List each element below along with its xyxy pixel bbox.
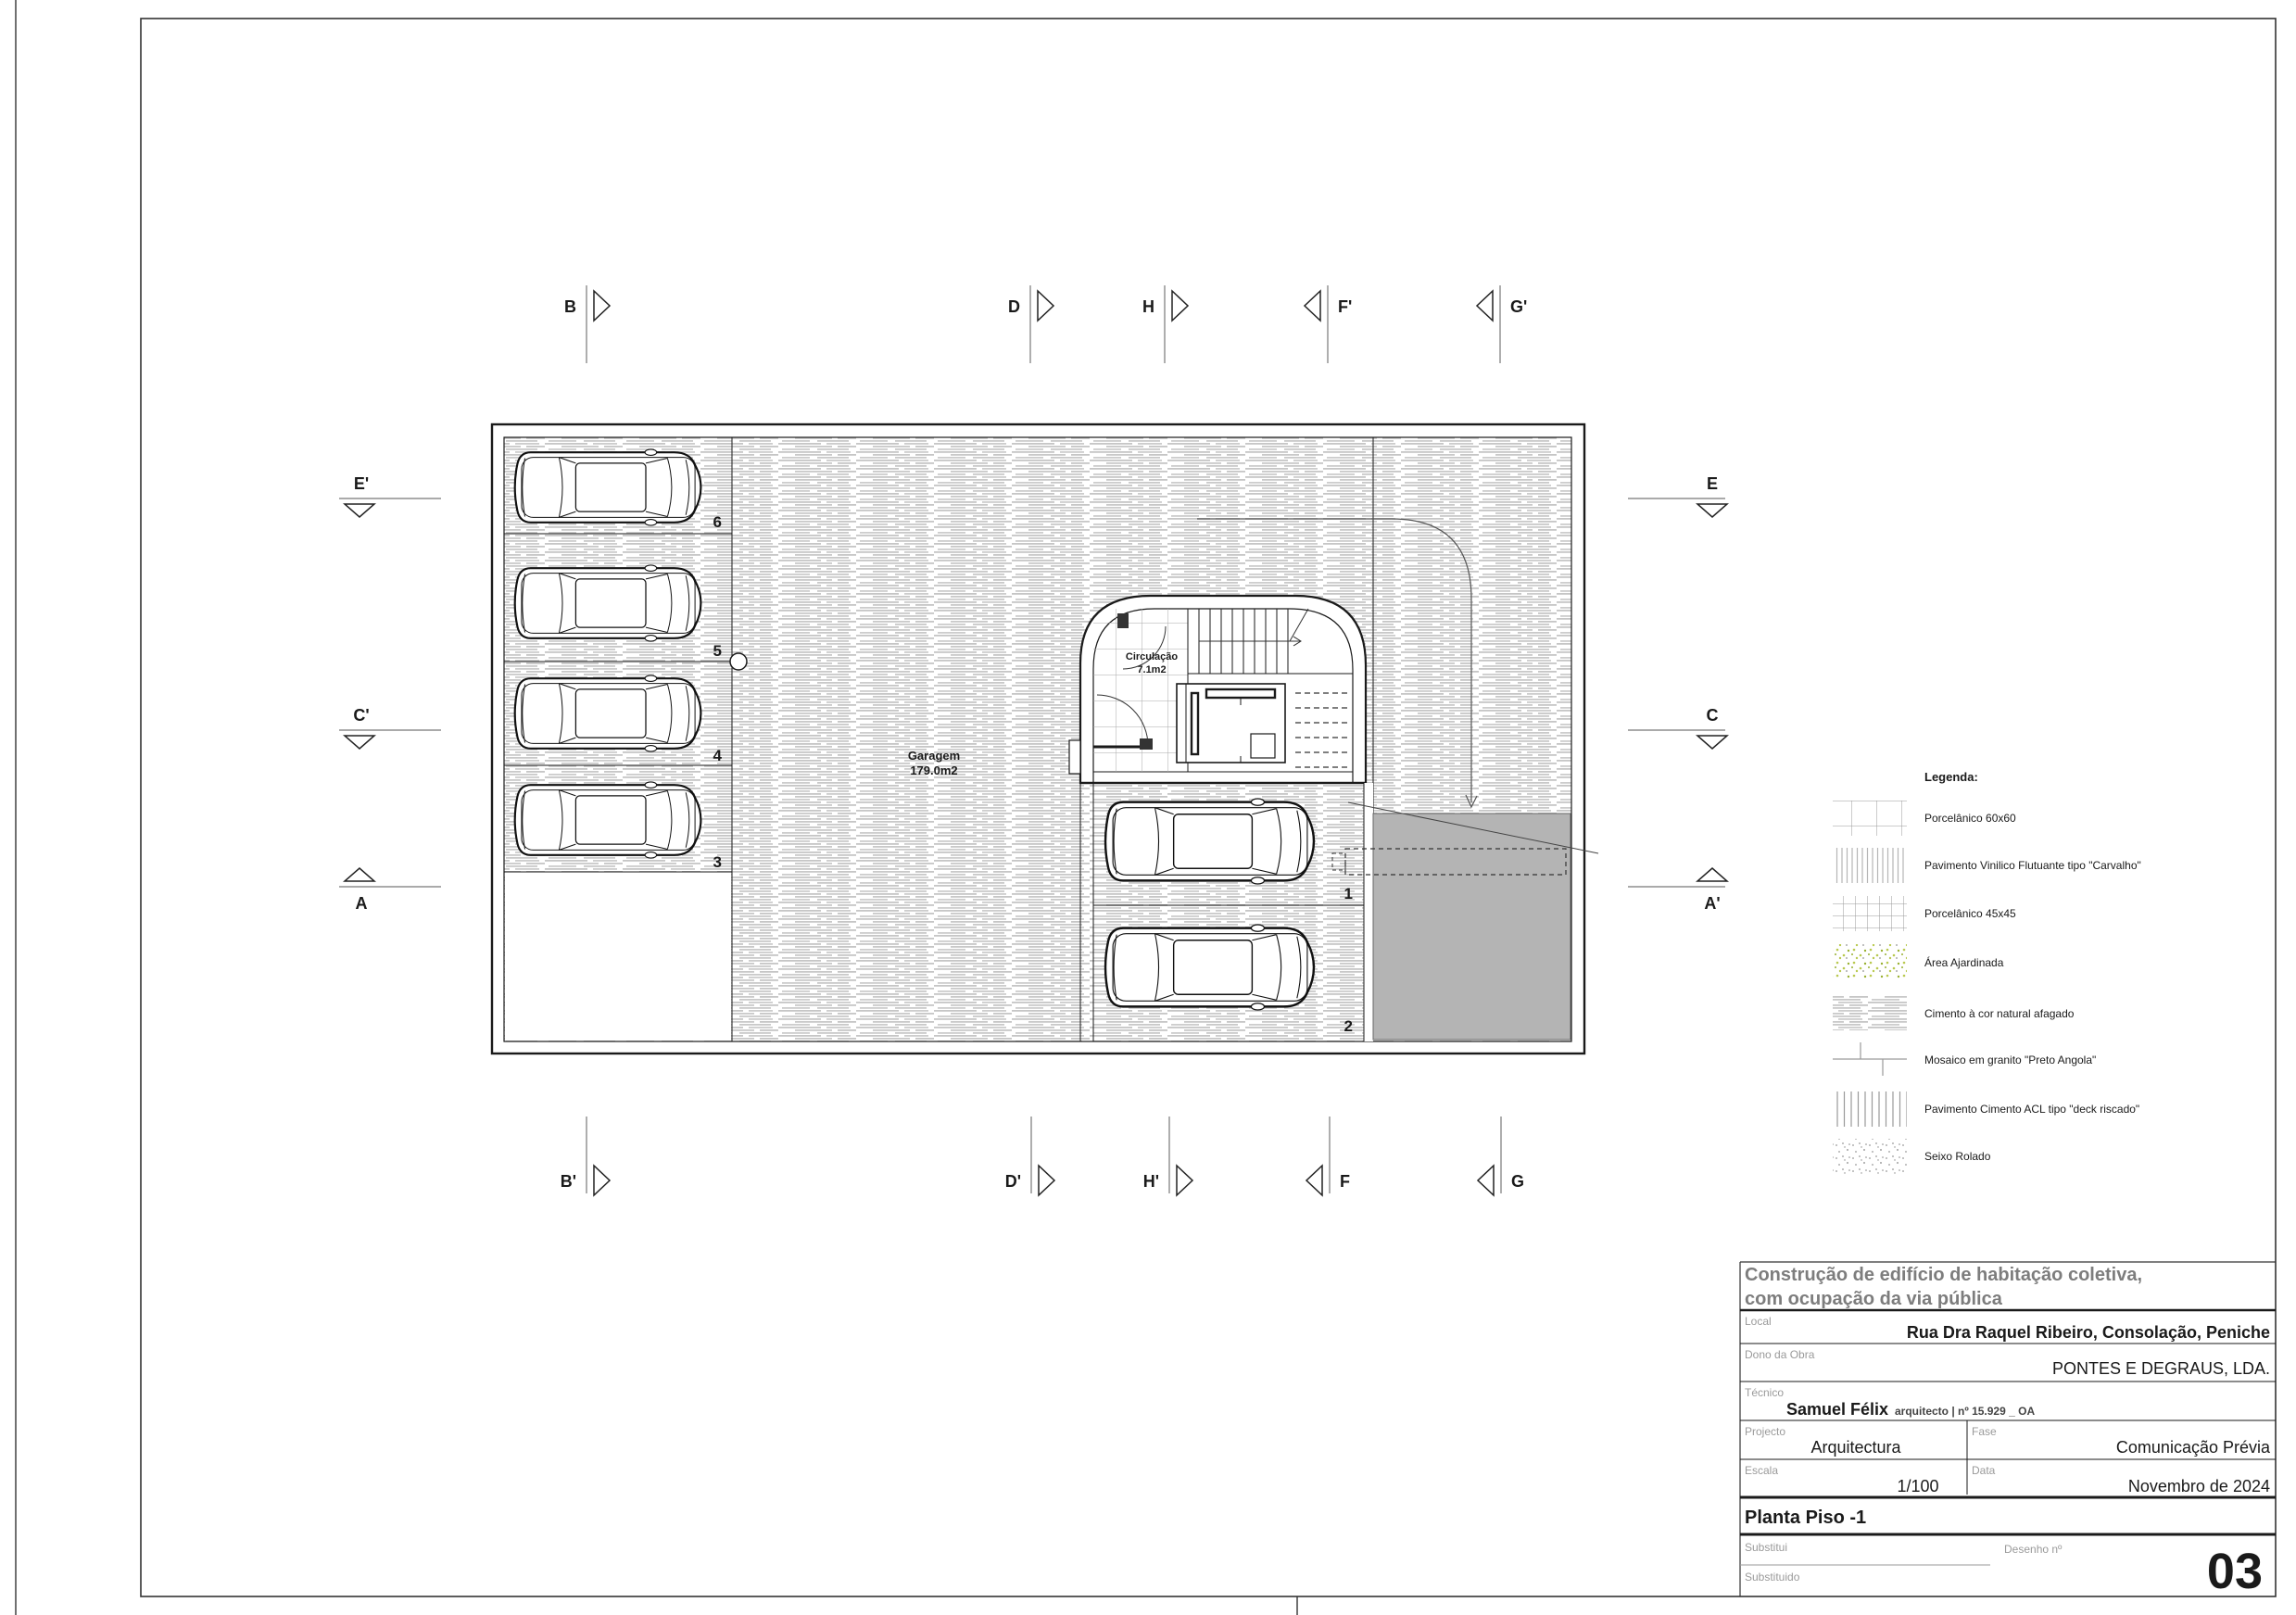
tecnico-label: Técnico: [1745, 1386, 1784, 1399]
legend-item: Mosaico em granito "Preto Angola": [1833, 1042, 2096, 1076]
drawing-name: Planta Piso -1: [1745, 1508, 1866, 1528]
unexcavated-zone: [505, 872, 731, 1041]
data-label: Data: [1972, 1464, 1996, 1477]
legend-item: Área Ajardinada: [1833, 944, 2004, 979]
swatch-vlines: [1833, 1091, 1907, 1127]
legend-item: Cimento à cor natural afagado: [1833, 995, 2075, 1030]
section-marker-g-prime: G': [1477, 285, 1527, 363]
stair-core: Circulação 7.1m2: [1069, 596, 1366, 783]
marker-letter: A: [356, 894, 368, 913]
room-name: Circulação: [1126, 651, 1179, 662]
swatch-cement: [1833, 995, 1907, 1030]
elevator: [1177, 684, 1285, 763]
room-area: 7.1m2: [1137, 664, 1166, 675]
local-value: Rua Dra Raquel Ribeiro, Consolação, Peni…: [1907, 1323, 2270, 1342]
marker-letter: F: [1340, 1172, 1350, 1191]
legend-item: Pavimento Vinilico Flutuante tipo "Carva…: [1833, 848, 2141, 883]
swatch-grid-large: [1833, 801, 1907, 836]
car-icon: [515, 565, 701, 641]
marker-letter: C': [353, 706, 369, 725]
section-marker-e-prime: E': [339, 474, 441, 517]
substitui-label: Substitui: [1745, 1541, 1787, 1554]
car-icon: [515, 449, 701, 525]
legend-title: Legenda:: [1924, 770, 1978, 784]
floor-plan-sheet: 6 5 4 3 Garagem 179.0m2: [0, 0, 2296, 1615]
stall-number: 1: [1344, 885, 1353, 902]
marker-letter: G: [1511, 1172, 1524, 1191]
section-marker-f: F: [1306, 1117, 1350, 1195]
swatch-grid-small: [1833, 896, 1907, 931]
section-marker-c-prime: C': [339, 706, 441, 749]
marker-letter: D: [1008, 297, 1020, 316]
elevator-counterweight: [1251, 734, 1275, 758]
legend-item: Seixo Rolado: [1833, 1139, 1991, 1174]
section-marker-b2: B': [561, 1117, 610, 1195]
marker-letter: A': [1704, 894, 1720, 913]
marker-letter: B: [564, 297, 576, 316]
projecto-value: Arquitectura: [1810, 1438, 1901, 1457]
marker-letter: E: [1707, 474, 1718, 493]
legend-item: Porcelânico 45x45: [1833, 896, 2016, 931]
legend-label: Área Ajardinada: [1924, 955, 2004, 969]
project-title-line2: com ocupação da via pública: [1745, 1289, 2003, 1309]
substituido-label: Substituido: [1745, 1571, 1800, 1583]
legend-label: Porcelânico 60x60: [1924, 812, 2016, 825]
legend-item: Porcelânico 60x60: [1833, 801, 2016, 836]
marker-letter: H': [1143, 1172, 1159, 1191]
section-marker-d2: D': [1005, 1117, 1054, 1195]
projecto-label: Projecto: [1745, 1425, 1785, 1438]
garagem-label: Garagem 179.0m2: [908, 749, 960, 777]
car-icon: [1105, 799, 1314, 884]
stall-number: 3: [713, 853, 722, 871]
legend-label: Porcelânico 45x45: [1924, 907, 2016, 920]
legend-item: Pavimento Cimento ACL tipo "deck riscado…: [1833, 1091, 2139, 1127]
section-marker-f-prime: F': [1305, 285, 1352, 363]
section-marker-d: D: [1008, 285, 1053, 363]
room-area: 179.0m2: [910, 763, 957, 777]
escala-value: 1/100: [1897, 1477, 1938, 1495]
room-name: Garagem: [908, 749, 960, 763]
section-marker-g: G: [1478, 1117, 1524, 1195]
tecnico-title: arquitecto | nº 15.929 _ OA: [1895, 1405, 2035, 1418]
legend-label: Seixo Rolado: [1924, 1150, 1991, 1163]
dono-value: PONTES E DEGRAUS, LDA.: [2052, 1359, 2270, 1378]
marker-letter: F': [1338, 297, 1352, 316]
tecnico-name: Samuel Félix: [1786, 1400, 1888, 1419]
car-icon: [1105, 925, 1314, 1010]
section-marker-h2: H': [1143, 1117, 1192, 1195]
project-title-line1: Construção de edifício de habitação cole…: [1745, 1265, 2142, 1285]
section-marker-a-prime: A': [1628, 868, 1727, 913]
stall-number: 4: [713, 747, 723, 764]
section-marker-c: C: [1628, 706, 1727, 749]
marker-letter: D': [1005, 1172, 1021, 1191]
legend: Legenda: Porcelânico 60x60 Pavimento Vin…: [1833, 770, 2141, 1174]
car-icon: [515, 675, 701, 751]
swatch-green-speckle: [1833, 944, 1907, 979]
stall-number: 2: [1344, 1017, 1353, 1035]
car-icon: [515, 782, 701, 858]
section-marker-a: A: [339, 868, 441, 913]
stall-number: 6: [713, 513, 722, 531]
desenho-label: Desenho nº: [2004, 1543, 2063, 1556]
escala-label: Escala: [1745, 1464, 1778, 1477]
swatch-stone: [1833, 1042, 1907, 1076]
legend-label: Mosaico em granito "Preto Angola": [1924, 1054, 2096, 1066]
marker-letter: E': [354, 474, 369, 493]
marker-letter: B': [561, 1172, 576, 1191]
legend-label: Pavimento Vinilico Flutuante tipo "Carva…: [1924, 859, 2141, 872]
dono-label: Dono da Obra: [1745, 1348, 1815, 1361]
section-marker-e: E: [1628, 474, 1727, 517]
marker-letter: C: [1707, 706, 1719, 725]
data-value: Novembro de 2024: [2128, 1477, 2270, 1495]
garage-plan: 6 5 4 3 Garagem 179.0m2: [492, 424, 1598, 1054]
section-marker-h: H: [1142, 285, 1188, 363]
swatch-gray-speckle: [1833, 1139, 1907, 1174]
legend-label: Pavimento Cimento ACL tipo "deck riscado…: [1924, 1103, 2139, 1116]
fase-label: Fase: [1972, 1425, 1997, 1438]
section-marker-b: B: [564, 285, 610, 363]
legend-label: Cimento à cor natural afagado: [1924, 1007, 2075, 1020]
local-label: Local: [1745, 1315, 1772, 1328]
column-circle: [730, 653, 747, 670]
marker-letter: H: [1142, 297, 1154, 316]
title-block: Construção de edifício de habitação cole…: [1740, 1262, 2276, 1599]
stall-number: 5: [713, 642, 722, 660]
swatch-vlines-dense: [1833, 848, 1907, 883]
marker-letter: G': [1510, 297, 1527, 316]
desenho-number: 03: [2207, 1544, 2263, 1599]
fase-value: Comunicação Prévia: [2116, 1438, 2271, 1457]
